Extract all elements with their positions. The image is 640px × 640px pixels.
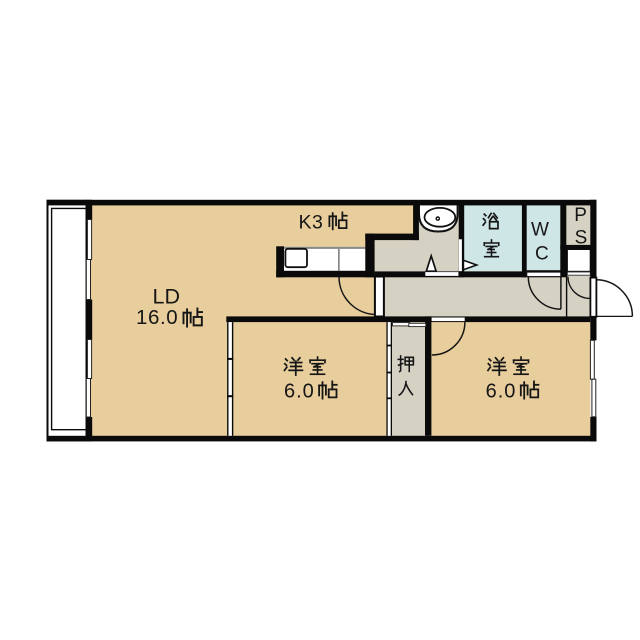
svg-text:S: S	[575, 228, 588, 249]
svg-text:W: W	[531, 219, 549, 240]
svg-text:6.0: 6.0	[284, 380, 315, 402]
svg-text:16.0: 16.0	[136, 306, 178, 329]
svg-text:K3: K3	[299, 211, 324, 233]
svg-text:6.0: 6.0	[486, 380, 517, 402]
svg-text:P: P	[574, 205, 587, 226]
svg-text:LD: LD	[153, 285, 180, 309]
svg-text:C: C	[535, 243, 549, 264]
